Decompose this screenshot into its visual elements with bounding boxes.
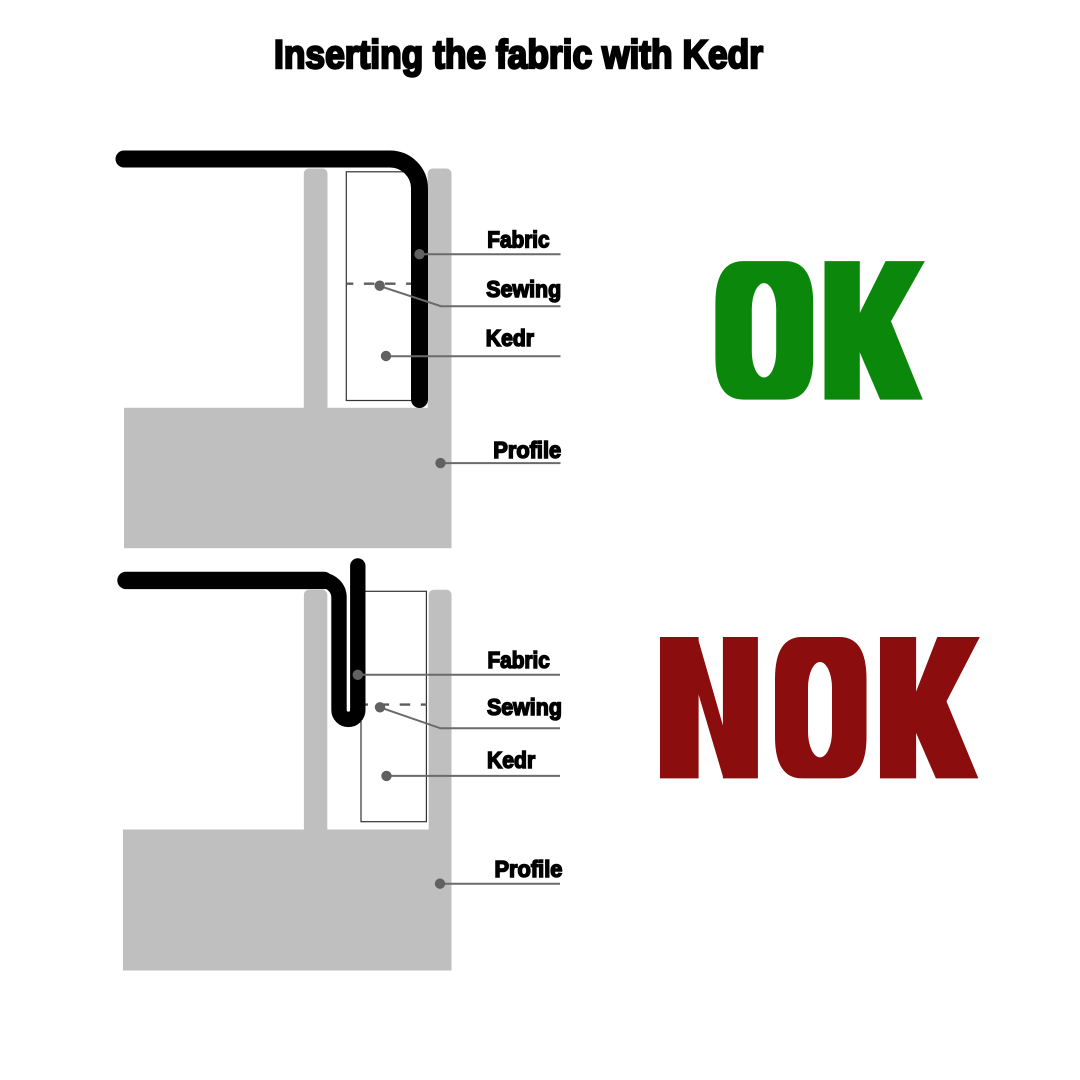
svg-text:Kedr: Kedr bbox=[487, 747, 535, 773]
svg-text:Sewing: Sewing bbox=[486, 276, 561, 302]
svg-text:Sewing: Sewing bbox=[487, 694, 562, 720]
svg-text:Inserting the fabric with Kedr: Inserting the fabric with Kedr bbox=[274, 33, 763, 77]
svg-text:Fabric: Fabric bbox=[488, 647, 551, 673]
svg-text:Kedr: Kedr bbox=[486, 325, 534, 351]
svg-text:Profile: Profile bbox=[495, 856, 563, 882]
svg-text:Fabric: Fabric bbox=[487, 226, 550, 252]
svg-text:Profile: Profile bbox=[493, 437, 561, 463]
